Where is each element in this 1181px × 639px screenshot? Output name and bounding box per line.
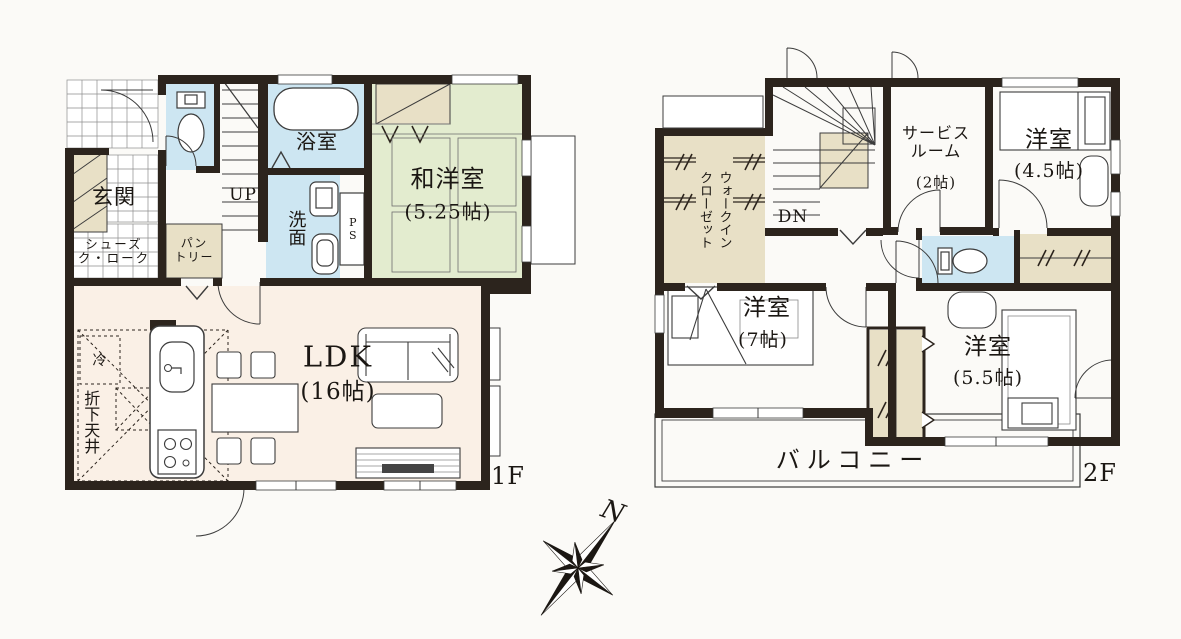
stove-icon xyxy=(158,430,196,474)
label-western-room-55-size: (5.5帖) xyxy=(953,368,1023,390)
label-balcony: バルコニー xyxy=(776,447,931,475)
chair-icon-55 xyxy=(948,292,996,328)
bay-window xyxy=(531,136,575,264)
label-stairs-up: UP xyxy=(229,186,257,206)
label-western-room-45: 洋室 xyxy=(1025,127,1073,153)
toilet-icon-2f xyxy=(938,248,987,274)
label-wayoshitsu: 和洋室 xyxy=(411,166,486,194)
compass-icon xyxy=(506,494,649,639)
label-lowered-ceiling: 折下天井 xyxy=(81,390,99,454)
stairs-up xyxy=(222,82,258,230)
label-service-room: サービス ルーム xyxy=(902,125,970,162)
label-floor-2f: 2F xyxy=(1083,460,1117,488)
label-bathroom: 浴室 xyxy=(296,131,338,154)
label-washroom: 洗面 xyxy=(285,210,306,246)
floor-2f xyxy=(655,48,1120,487)
bathtub-icon xyxy=(274,88,358,130)
sink-icon xyxy=(160,342,194,392)
kitchen-counter xyxy=(150,320,204,478)
label-pipe-space: PS xyxy=(346,216,359,242)
label-western-room-7-size: (7帖) xyxy=(738,330,788,352)
label-western-room-55: 洋室 xyxy=(964,334,1012,360)
label-genkan: 玄関 xyxy=(92,185,136,209)
label-walk-in-closet: ウォークイン クローゼット xyxy=(695,171,734,249)
bed-icon-7 xyxy=(668,287,813,365)
label-stairs-down: DN xyxy=(778,208,809,228)
tv-board-icon xyxy=(356,448,460,478)
label-refrigerator: 冷 xyxy=(93,353,108,369)
label-floor-1f: 1F xyxy=(491,463,525,491)
label-service-room-size: (2帖) xyxy=(916,174,956,191)
label-ldk-size: (16帖) xyxy=(300,379,375,405)
label-ldk: LDK xyxy=(303,340,373,373)
label-western-room-45-size: (4.5帖) xyxy=(1014,161,1084,183)
chair-icon-45 xyxy=(1080,156,1108,206)
label-shoes-closet: シューズ ク・ローク xyxy=(78,238,150,267)
label-wayoshitsu-size: (5.25帖) xyxy=(404,201,491,224)
floor-plan: 玄関 シューズ ク・ローク パン トリー UP 浴室 洗面 PS 和洋室 (5.… xyxy=(0,0,1181,639)
desk-icon-55 xyxy=(1008,398,1058,428)
label-pantry: パン トリー xyxy=(174,237,213,265)
label-western-room-7: 洋室 xyxy=(743,295,791,321)
floor-plan-drawing xyxy=(0,0,1181,639)
washbasin-icon xyxy=(310,182,338,216)
coffee-table-icon xyxy=(372,394,442,428)
toilet-icon xyxy=(177,92,205,152)
washer-icon xyxy=(312,234,338,274)
